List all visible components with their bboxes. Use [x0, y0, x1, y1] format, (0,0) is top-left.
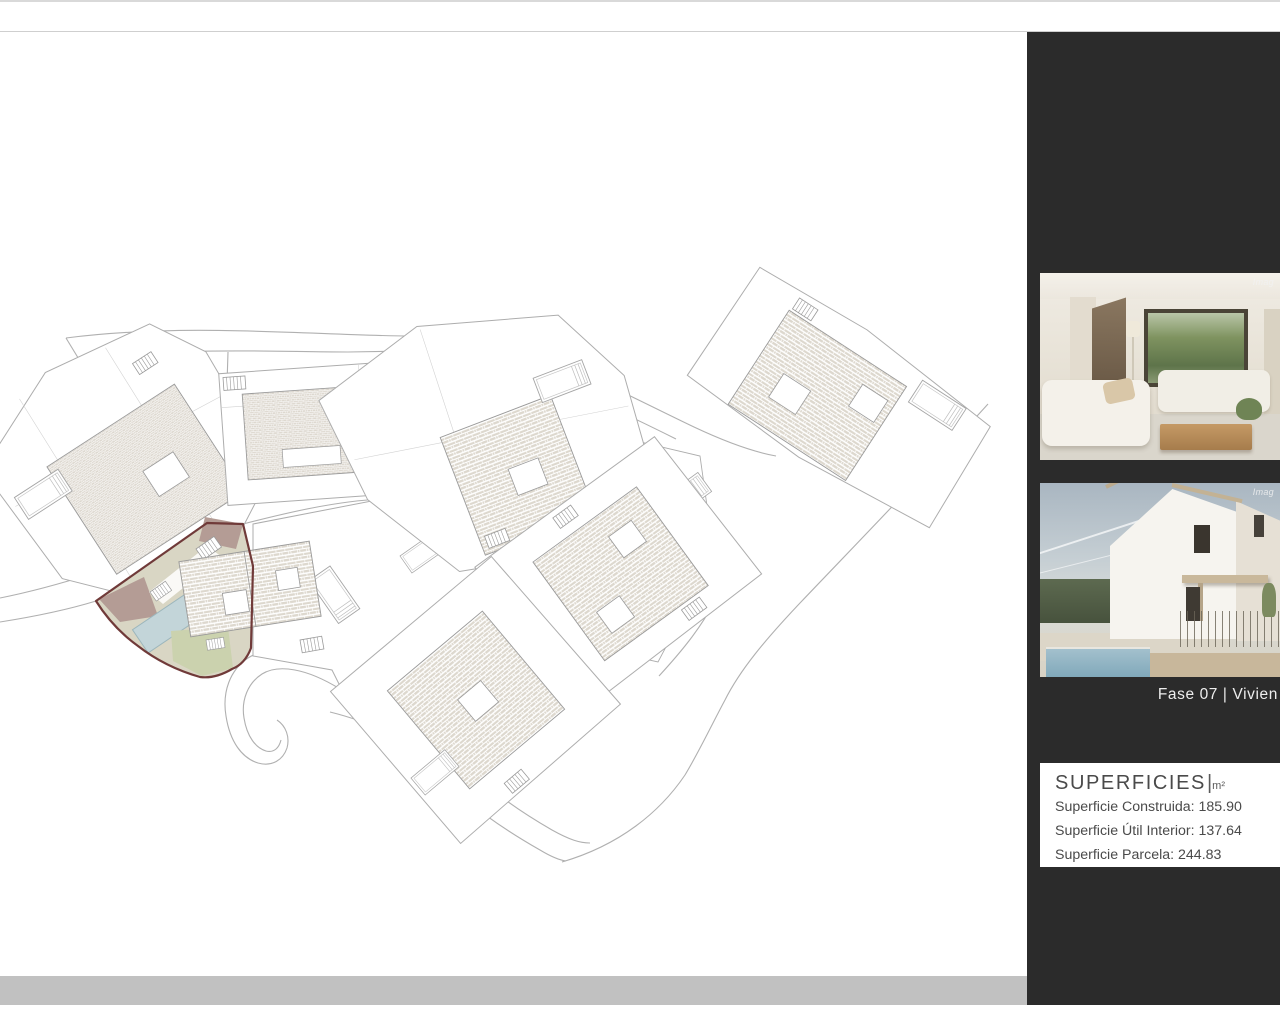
superficie-parcela: Superficie Parcela: 244.83 — [1055, 843, 1280, 867]
superficies-title: SUPERFICIES|m² — [1055, 772, 1280, 795]
photo1-watermark: Imag — [1253, 277, 1274, 287]
villa-exterior-photo: Imag — [1040, 483, 1280, 677]
foreground-ground — [1150, 653, 1280, 677]
superficies-box: SUPERFICIES|m² Superficie Construida: 18… — [1040, 763, 1280, 867]
living-room-photo: Imag — [1040, 273, 1280, 460]
top-strip — [0, 0, 1280, 32]
superficie-construida: Superficie Construida: 185.90 — [1055, 795, 1280, 819]
site-plan-svg — [0, 32, 1027, 976]
photo2-watermark: Imag — [1253, 487, 1274, 497]
window — [1194, 525, 1210, 553]
sideboard — [1264, 309, 1280, 429]
sidebar: Imag Imag Fase 07 | Vivien SUPER — [1027, 32, 1280, 1005]
unit-label: m² — [1212, 780, 1225, 792]
roof-edge — [1105, 483, 1173, 489]
swimming-pool — [1046, 647, 1150, 677]
lamp-shade — [1126, 321, 1140, 337]
bottom-strip — [0, 1005, 1280, 1024]
window — [1254, 515, 1264, 537]
superficie-util-interior: Superficie Útil Interior: 137.64 — [1055, 819, 1280, 843]
pergola — [1182, 575, 1268, 583]
phase-caption: Fase 07 | Vivien — [1158, 686, 1278, 704]
site-plan-area — [0, 32, 1027, 976]
footer-bar — [0, 976, 1027, 1005]
villa-top-right — [683, 261, 1001, 538]
coffee-table — [1160, 424, 1252, 450]
brochure-page: Imag Imag Fase 07 | Vivien SUPER — [0, 0, 1280, 1024]
plant — [1236, 398, 1262, 420]
photo-ceiling — [1040, 273, 1280, 299]
small-tree — [1262, 583, 1276, 617]
